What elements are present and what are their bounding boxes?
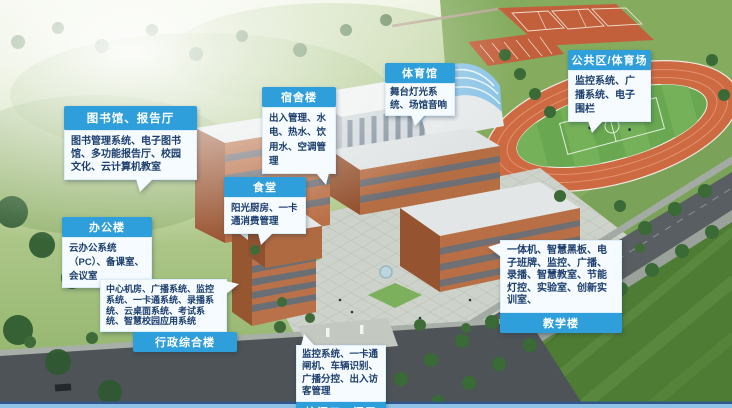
callout-body: 阳光厨房、一卡通消费管理 [224, 197, 306, 234]
car [55, 383, 71, 391]
callout-title: 图书馆、报告厅 [64, 106, 197, 130]
callout-title: 行政综合楼 [133, 332, 237, 352]
callout-title: 体育馆 [385, 63, 455, 83]
callout-school-gate: 监控系统、一卡通闸机、车辆识别、广播分控、出入访客管理 校门口、门卫 [296, 345, 386, 408]
callout-body: 一体机、智慧黑板、电子班牌、监控、广播、录播、智慧教室、节能灯控、实验室、创新实… [500, 240, 622, 313]
callout-library-hall: 图书馆、报告厅 图书管理系统、电子图书馆、多功能报告厅、校园文化、云计算机教室 [64, 106, 197, 180]
callout-title: 教学楼 [500, 313, 622, 333]
callout-teaching-building: 一体机、智慧黑板、电子班牌、监控、广播、录播、智慧教室、节能灯控、实验室、创新实… [500, 240, 622, 333]
callout-body: 中心机房、广播系统、监控系统、一卡通系统、录播系统、云桌面系统、考试系统、智慧校… [100, 279, 227, 332]
callout-dormitory: 宿舍楼 出入管理、水电、热水、饮用水、空调管理 [262, 87, 336, 174]
callout-body: 出入管理、水电、热水、饮用水、空调管理 [262, 107, 336, 174]
callout-tail-pointer [411, 115, 425, 126]
callout-public-stadium: 公共区/体育场 监控系统、广播系统、电子围栏 [568, 50, 651, 122]
callout-title: 食堂 [224, 177, 306, 197]
callout-title: 校门口、门卫 [296, 402, 386, 408]
callout-tail-pointer [226, 281, 239, 294]
callout-tail-pointer [588, 121, 603, 133]
callout-gymnasium: 体育馆 舞台灯光系统、场馆音响 [385, 63, 455, 116]
callout-admin-complex: 中心机房、广播系统、监控系统、一卡通系统、录播系统、云桌面系统、考试系统、智慧校… [100, 279, 227, 352]
fountain [380, 266, 392, 278]
callout-body: 监控系统、一卡通闸机、车辆识别、广播分控、出入访客管理 [296, 345, 386, 402]
callout-body: 监控系统、广播系统、电子围栏 [568, 70, 651, 122]
callout-tail-pointer [316, 173, 329, 185]
callout-body: 图书管理系统、电子图书馆、多功能报告厅、校园文化、云计算机教室 [64, 130, 197, 180]
callout-tail-pointer [488, 243, 501, 257]
callout-tail-pointer [258, 233, 273, 245]
callout-title: 办公楼 [62, 217, 152, 237]
callout-title: 宿舍楼 [262, 87, 336, 107]
callout-canteen: 食堂 阳光厨房、一卡通消费管理 [224, 177, 306, 234]
campus-aerial-slide: 图书馆、报告厅 图书管理系统、电子图书馆、多功能报告厅、校园文化、云计算机教室 … [0, 0, 732, 408]
callout-tail-pointer [136, 179, 153, 192]
callout-tail-pointer [301, 334, 315, 346]
callout-title: 公共区/体育场 [568, 50, 651, 70]
callout-body: 舞台灯光系统、场馆音响 [385, 83, 455, 116]
callout-office-building: 办公楼 云办公系统（PC）、备课室、会议室 [62, 217, 152, 288]
